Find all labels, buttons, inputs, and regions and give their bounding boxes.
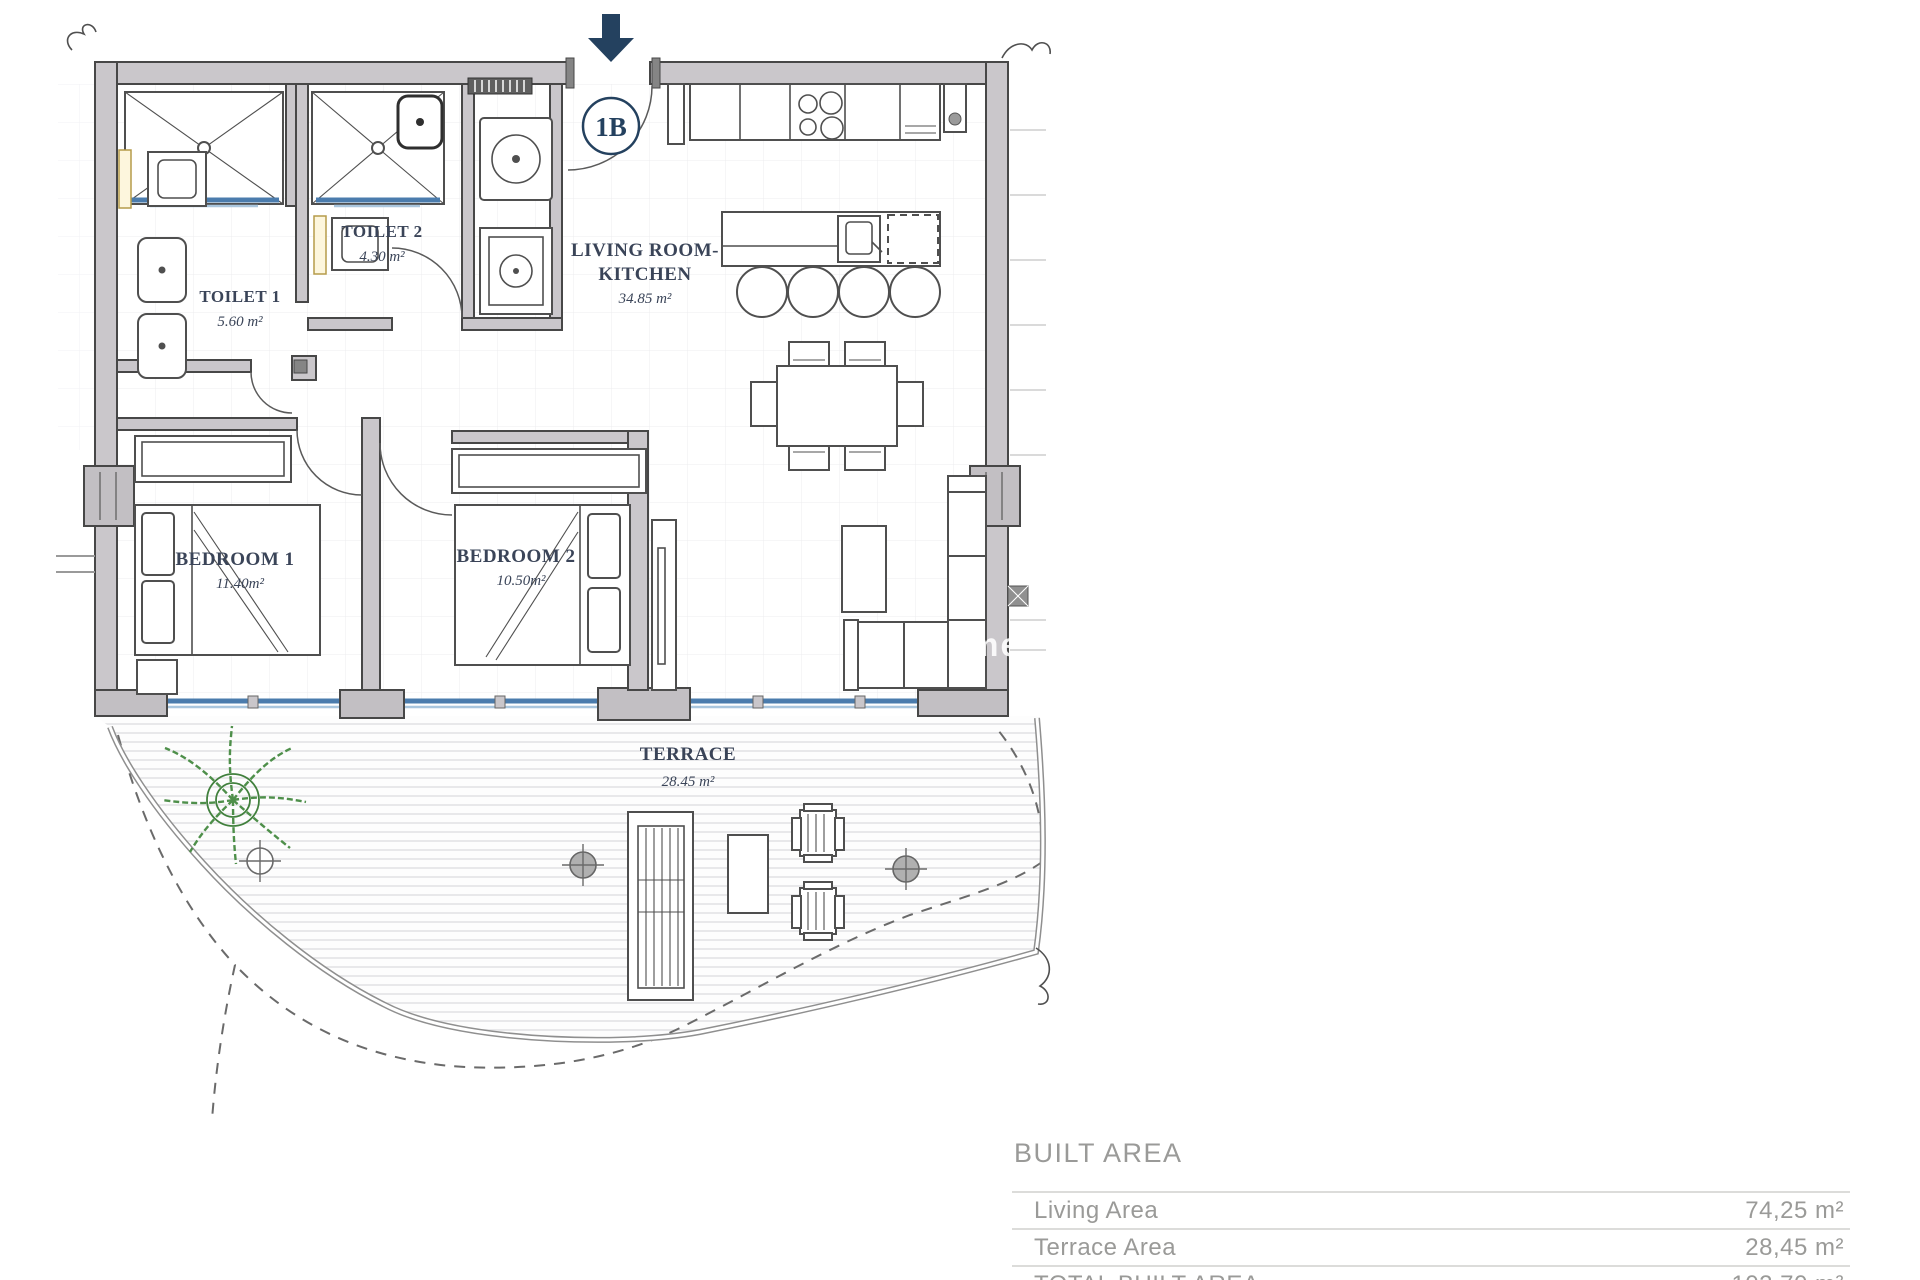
toilet1-bidet-icon (138, 314, 186, 378)
floor-plan-drawing: 1B (0, 0, 1920, 1280)
wall-box-icon (1008, 586, 1028, 606)
fridge-column (944, 84, 966, 132)
row-value: 102,70 m² (1731, 1271, 1844, 1280)
living-label-line2: KITCHEN (598, 264, 691, 285)
row-value: 28,45 m² (1745, 1234, 1844, 1262)
row-label: Living Area (1034, 1197, 1158, 1225)
toilet2-area: 4.30 m² (359, 249, 405, 265)
living-area: 34.85 m² (618, 291, 672, 307)
kitchen-island (722, 212, 940, 266)
bedroom2-area: 10.50m² (496, 573, 546, 589)
kitchen-counter (668, 84, 966, 144)
water-heater-icon (480, 228, 552, 314)
nightstand-1 (137, 660, 177, 694)
terrace-chair-2 (792, 882, 844, 940)
coffee-table (842, 526, 886, 612)
toilet1-label: TOILET 1 (199, 287, 280, 306)
closet-1 (135, 436, 291, 482)
floor-plan-page: 1B (0, 0, 1920, 1280)
sun-lounger (628, 812, 693, 1000)
neighbor-floor-strip (58, 84, 95, 450)
washer-icon (480, 118, 552, 200)
sink-icon (838, 216, 882, 262)
bedroom2-label: BEDROOM 2 (456, 546, 575, 567)
side-table (728, 835, 768, 913)
pilaster-left (84, 466, 134, 526)
unit-badge: 1B (583, 98, 639, 154)
unit-badge-label: 1B (595, 112, 627, 142)
terrace-chair-1 (792, 804, 844, 862)
bedroom1-area: 11.40m² (216, 576, 264, 592)
bedroom1-label: BEDROOM 1 (175, 549, 294, 570)
toilet2-basin-icon (398, 96, 442, 148)
table-row: TOTAL BUILT AREA 102,70 m² (1012, 1265, 1850, 1280)
vent-grille-icon (468, 78, 532, 94)
toilet1-area: 5.60 m² (217, 314, 263, 330)
row-label: Terrace Area (1034, 1234, 1176, 1262)
toilet2-label: TOILET 2 (341, 222, 422, 241)
terrace-area: 28.45 m² (662, 774, 715, 790)
closet-2 (452, 449, 646, 493)
watermark: me (969, 626, 1021, 663)
terrace-label: TERRACE (640, 744, 736, 765)
table-row: Terrace Area 28,45 m² (1012, 1228, 1850, 1265)
row-value: 74,25 m² (1745, 1197, 1844, 1225)
built-area-rows: Living Area 74,25 m² Terrace Area 28,45 … (1012, 1191, 1850, 1280)
table-row: Living Area 74,25 m² (1012, 1191, 1850, 1228)
toilet1-wc-icon (138, 238, 186, 302)
built-area-title: BUILT AREA (1014, 1138, 1850, 1169)
built-area-table: BUILT AREA Living Area 74,25 m² Terrace … (1012, 1138, 1850, 1280)
tv-unit (652, 520, 676, 690)
dishwasher-icon (888, 215, 938, 263)
row-label: TOTAL BUILT AREA (1034, 1271, 1259, 1280)
living-label-line1: LIVING ROOM- (571, 240, 719, 261)
